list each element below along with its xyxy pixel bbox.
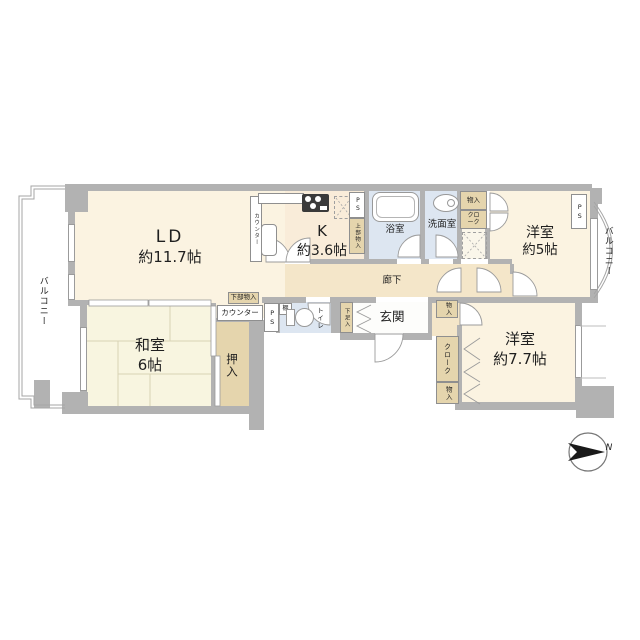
label-balcony-left: バルコニー — [36, 270, 48, 332]
label-entrance: 玄関 — [362, 309, 422, 325]
kitchen-size: 約3.6帖 — [278, 242, 366, 260]
door-washroom — [436, 235, 458, 257]
basin-icon — [433, 194, 459, 212]
label-living-dining: LD 約11.7帖 — [100, 226, 240, 268]
ps-bottom-box: PS — [264, 303, 279, 332]
western5-name: 洋室 — [500, 224, 580, 242]
western77-size: 約7.7帖 — [470, 350, 570, 370]
western5-size: 約5帖 — [500, 242, 580, 260]
kitchen-counter-top — [258, 193, 304, 204]
stove-icon — [302, 194, 329, 212]
toilet-tank-icon — [286, 309, 295, 326]
label-kitchen: K 約3.6帖 — [278, 222, 366, 260]
monoire-entrance-label: 物入 — [444, 302, 451, 316]
cloak77-box: クローク — [436, 336, 459, 382]
cloak77-label: クローク — [443, 343, 451, 375]
japanese-size: 6帖 — [105, 356, 195, 376]
bathtub-icon — [372, 192, 419, 222]
monoire77-label: 物入 — [444, 386, 451, 401]
label-oshiire: 押入 — [224, 340, 239, 390]
label-western5: 洋室 約5帖 — [500, 224, 580, 260]
door-entrance — [375, 334, 403, 362]
counter-kitchen-label: カウンター — [253, 213, 259, 246]
monoire5-label: 物入 — [467, 197, 480, 204]
label-bathroom: 浴室 — [368, 224, 422, 236]
monoire77-box: 物入 — [436, 382, 459, 404]
label-hallway: 廊下 — [374, 275, 410, 287]
door-nook-left — [437, 268, 461, 292]
door-nook-right — [477, 268, 501, 292]
shoe-storage-label: 下足入 — [343, 308, 349, 328]
monoire5-box: 物入 — [460, 191, 487, 210]
ps-topright-label: PS — [575, 203, 582, 221]
label-japanese: 和室 6帖 — [105, 336, 195, 375]
shoe-storage-box: 下足入 — [340, 302, 353, 333]
ld-size: 約11.7帖 — [100, 248, 240, 268]
door-bathroom — [398, 235, 420, 257]
cloak5-label: クローク — [466, 213, 481, 227]
ld-name: LD — [100, 226, 240, 248]
toilet-bowl-icon — [295, 308, 314, 327]
counter-ld-label: カウンター — [221, 309, 259, 318]
floor-plan: 下部物入 カウンター PS 棚 カウンター PS 上部物入 物入 クローク PS… — [0, 0, 640, 640]
label-balcony-right: バルコニー — [601, 220, 613, 282]
label-washroom: 洗面室 — [419, 219, 465, 231]
counter-ld-box: カウンター — [217, 305, 263, 321]
kitchen-sink — [261, 224, 277, 256]
compass-north-label: N — [602, 443, 616, 455]
monoire-entrance-box: 物入 — [436, 300, 458, 318]
ps-bottom-label: PS — [268, 309, 275, 327]
label-western77: 洋室 約7.7帖 — [470, 330, 570, 369]
washer-space — [462, 232, 487, 259]
ps-kitchen-label: PS — [354, 197, 361, 213]
door-monoire5 — [490, 193, 508, 211]
japanese-name: 和室 — [105, 336, 195, 356]
lower-storage-label: 下部物入 — [231, 294, 257, 301]
kitchen-name: K — [278, 222, 366, 242]
door-western77 — [460, 303, 482, 325]
door-western5 — [513, 272, 537, 296]
dimension-ticks — [580, 326, 606, 378]
western77-name: 洋室 — [470, 330, 570, 350]
lower-storage-box: 下部物入 — [228, 292, 259, 304]
ps-kitchen-box: PS — [349, 192, 365, 218]
label-toilet: トイレ — [315, 304, 323, 332]
